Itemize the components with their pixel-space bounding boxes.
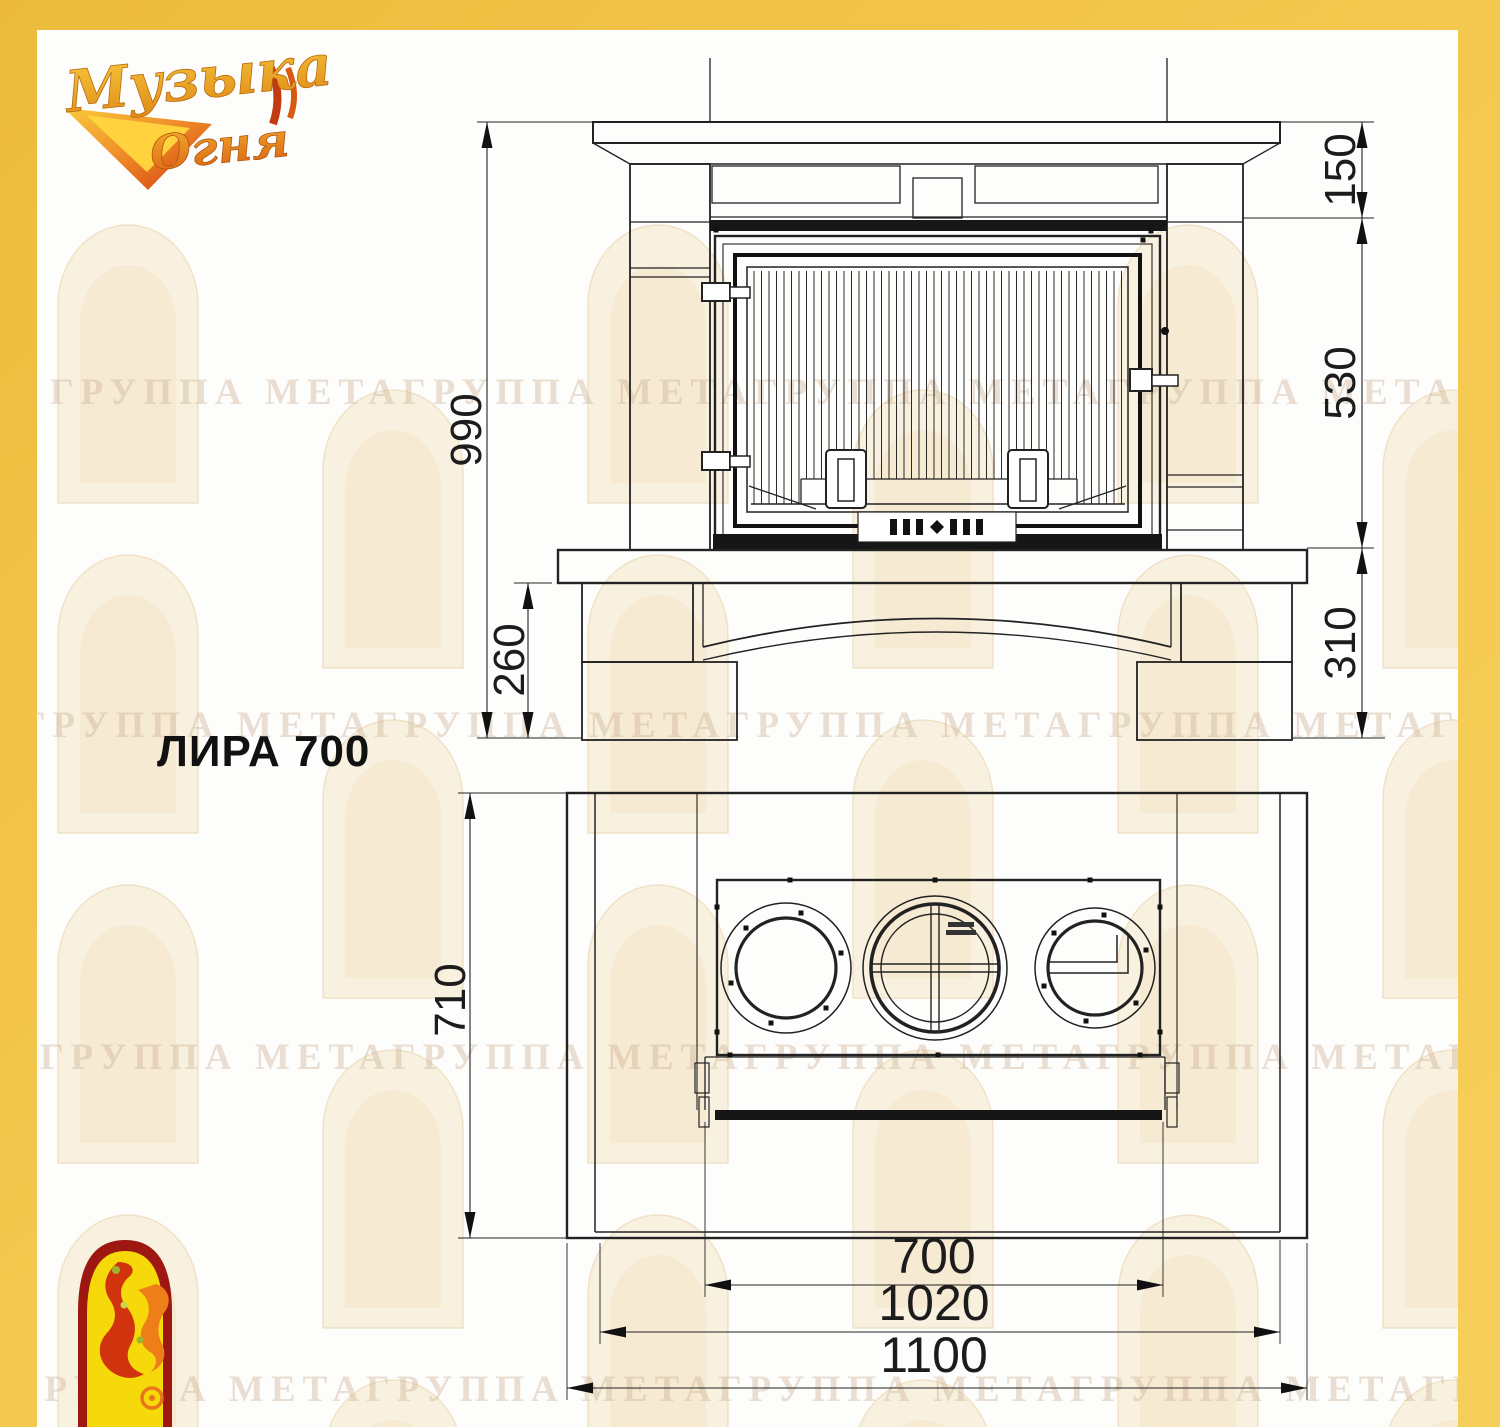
- dim-mantel-band: 150: [1316, 133, 1365, 206]
- dim-hearth-to-floor: 260: [485, 623, 534, 696]
- dim-total-width: 1100: [880, 1327, 988, 1383]
- firebox-front-edge: [715, 1110, 1162, 1120]
- firebox-top-band: [710, 220, 1167, 231]
- dim-depth: 710: [426, 963, 475, 1036]
- hinge: [702, 283, 730, 301]
- watermark-text-row: ГРУППА МЕТАГРУППА МЕТАГРУППА МЕТАГРУППА …: [50, 372, 1500, 413]
- dim-base-height: 310: [1316, 606, 1365, 679]
- door-latch: [1130, 369, 1152, 391]
- firebird-emblem: [78, 1240, 172, 1427]
- dim-opening-height: 530: [1316, 346, 1365, 419]
- dim-body-width: 1020: [878, 1275, 989, 1331]
- dim-total-height: 990: [442, 393, 491, 466]
- drawing-sheet: ГРУППА МЕТАГРУППА МЕТАГРУППА МЕТАГРУППА …: [0, 0, 1500, 1427]
- flue-marking: [948, 922, 974, 927]
- air-vents: [890, 519, 983, 535]
- model-title: ЛИРА 700: [157, 727, 370, 776]
- hinge: [702, 452, 730, 470]
- technical-drawing: ГРУППА МЕТАГРУППА МЕТАГРУППА МЕТАГРУППА …: [0, 0, 1500, 1427]
- watermark-text-row: ГРУППА МЕТАГРУППА МЕТАГРУППА МЕТАГРУППА …: [14, 1369, 1500, 1410]
